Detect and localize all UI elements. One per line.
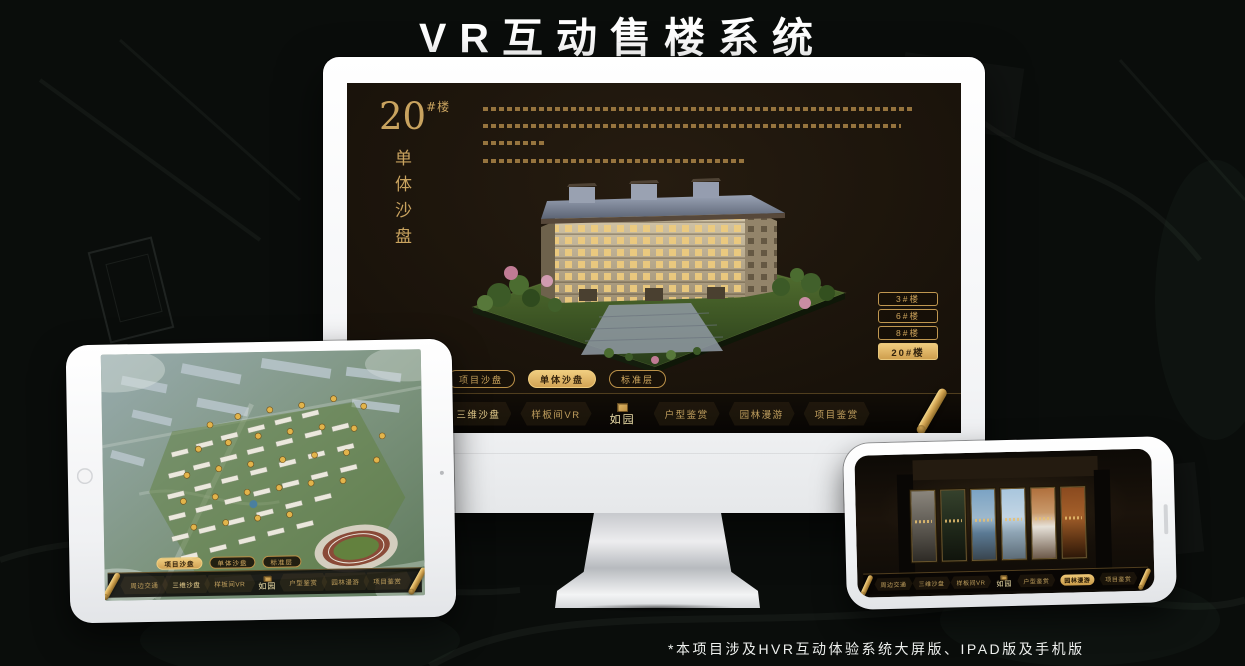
nav-item-traffic[interactable]: 周边交通: [129, 578, 159, 593]
nav-item-3d-sandbox[interactable]: 三维沙盘: [171, 577, 201, 592]
brand-seal-icon: [617, 403, 628, 412]
building-button-3[interactable]: 3#楼: [878, 292, 938, 306]
tablet-screen: 项目沙盘 单体沙盘 标准层 周边交通 三维沙盘 样板间VR 如园 户型鉴赏 园林…: [101, 349, 425, 601]
block-unit-suffix: #楼: [426, 100, 450, 114]
nav-item-project-view[interactable]: 项目鉴赏: [1104, 573, 1132, 585]
scene-panel[interactable]: [970, 488, 997, 561]
scene-panel-carousel: [910, 486, 1087, 562]
nav-item-unit-view[interactable]: 户型鉴赏: [663, 404, 711, 424]
nav-item-3d-sandbox[interactable]: 三维沙盘: [454, 404, 502, 424]
tab-standard-floor[interactable]: 标准层: [609, 370, 666, 388]
tab-project-sandbox[interactable]: 项目沙盘: [156, 557, 202, 570]
nav-item-unit-view[interactable]: 户型鉴赏: [1022, 575, 1050, 587]
building-button-20[interactable]: 20#楼: [878, 343, 938, 360]
scene-panel[interactable]: [1000, 488, 1027, 561]
nav-item-traffic[interactable]: 周边交通: [879, 578, 907, 590]
nav-item-garden-roam[interactable]: 园林漫游: [1060, 573, 1094, 585]
tab-single-sandbox[interactable]: 单体沙盘: [528, 370, 596, 388]
scene-lintel: [912, 456, 1097, 481]
nav-item-project-view[interactable]: 项目鉴赏: [372, 574, 402, 589]
brand-logo-text: 如园: [996, 579, 1012, 587]
building-selector-group: 3#楼 6#楼 8#楼 20#楼: [878, 292, 938, 360]
scroll-icon[interactable]: [917, 387, 949, 433]
phone-screen: 周边交通 三维沙盘 样板间VR 如园 户型鉴赏 园林漫游 项目鉴赏: [854, 449, 1154, 598]
tab-single-sandbox[interactable]: 单体沙盘: [209, 556, 255, 569]
nav-item-showroom-vr[interactable]: 样板间VR: [529, 404, 582, 424]
nav-item-garden-roam[interactable]: 园林漫游: [330, 574, 360, 589]
scene-panel[interactable]: [940, 489, 967, 562]
description-text-line: [483, 124, 901, 128]
brand-logo-text: 如园: [258, 581, 276, 590]
scene-panel[interactable]: [1030, 487, 1057, 560]
tablet-device: 项目沙盘 单体沙盘 标准层 周边交通 三维沙盘 样板间VR 如园 户型鉴赏 园林…: [66, 339, 457, 624]
tab-standard-floor[interactable]: 标准层: [262, 555, 301, 568]
scroll-icon[interactable]: [860, 574, 873, 595]
tab-project-sandbox[interactable]: 项目沙盘: [447, 370, 515, 388]
building-mass: [541, 178, 785, 303]
building-button-6[interactable]: 6#楼: [878, 309, 938, 323]
nav-item-3d-sandbox[interactable]: 三维沙盘: [917, 577, 945, 589]
page-title: VR互动售楼系统: [0, 4, 1245, 64]
description-text-line: [483, 107, 913, 111]
description-text-line: [483, 141, 545, 145]
speaker-slot-icon: [1164, 504, 1169, 534]
building-button-8[interactable]: 8#楼: [878, 326, 938, 340]
scene-panel[interactable]: [1060, 486, 1087, 559]
footnote-text: *本项目涉及HVR互动体验系统大屏版、IPAD版及手机版: [668, 639, 1085, 659]
block-subtitle-vertical: 单体沙盘: [389, 149, 414, 279]
building-graphic: [459, 155, 859, 373]
nav-item-project-view[interactable]: 项目鉴赏: [813, 404, 861, 424]
brand-logo: 如园: [996, 574, 1012, 587]
scroll-icon[interactable]: [1138, 567, 1151, 588]
brand-logo: 如园: [258, 575, 276, 590]
nav-item-unit-view[interactable]: 户型鉴赏: [288, 575, 318, 590]
brand-logo: 如园: [610, 403, 636, 425]
phone-device: 周边交通 三维沙盘 样板间VR 如园 户型鉴赏 园林漫游 项目鉴赏: [843, 436, 1177, 610]
camera-dot-icon: [440, 471, 444, 475]
scene-panel[interactable]: [910, 490, 937, 563]
building-3d-render[interactable]: [459, 155, 859, 373]
nav-item-showroom-vr[interactable]: 样板间VR: [955, 576, 986, 588]
home-button-icon: [77, 468, 93, 484]
tablet-tab-group: 项目沙盘 单体沙盘 标准层: [156, 555, 301, 570]
monitor-stand-shadow: [542, 602, 772, 614]
block-number-heading: 20#楼: [379, 95, 450, 138]
nav-item-showroom-vr[interactable]: 样板间VR: [213, 576, 246, 591]
nav-item-garden-roam[interactable]: 园林漫游: [738, 404, 786, 424]
brand-logo-text: 如园: [610, 413, 636, 426]
monitor-tab-group: 项目沙盘 单体沙盘 标准层: [447, 370, 666, 388]
